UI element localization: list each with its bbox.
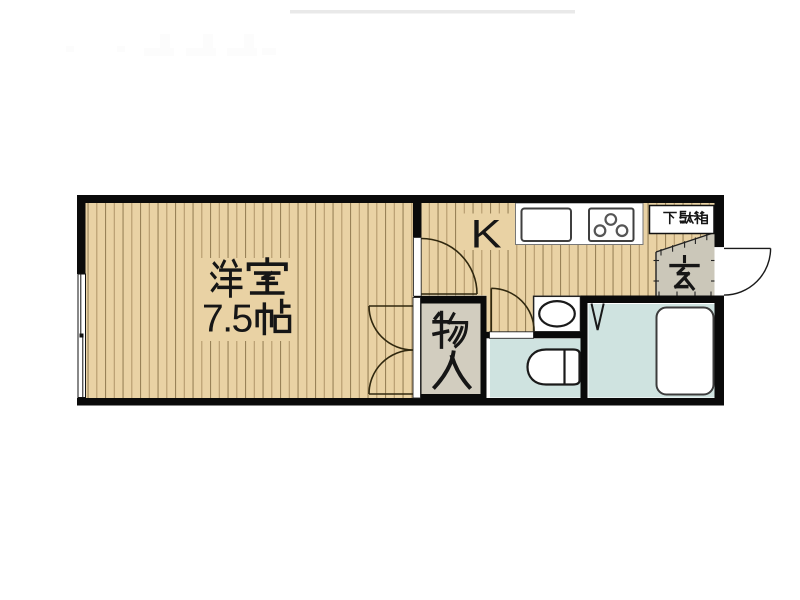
svg-text:K: K bbox=[471, 213, 502, 257]
svg-text:7.5: 7.5 bbox=[202, 298, 253, 341]
